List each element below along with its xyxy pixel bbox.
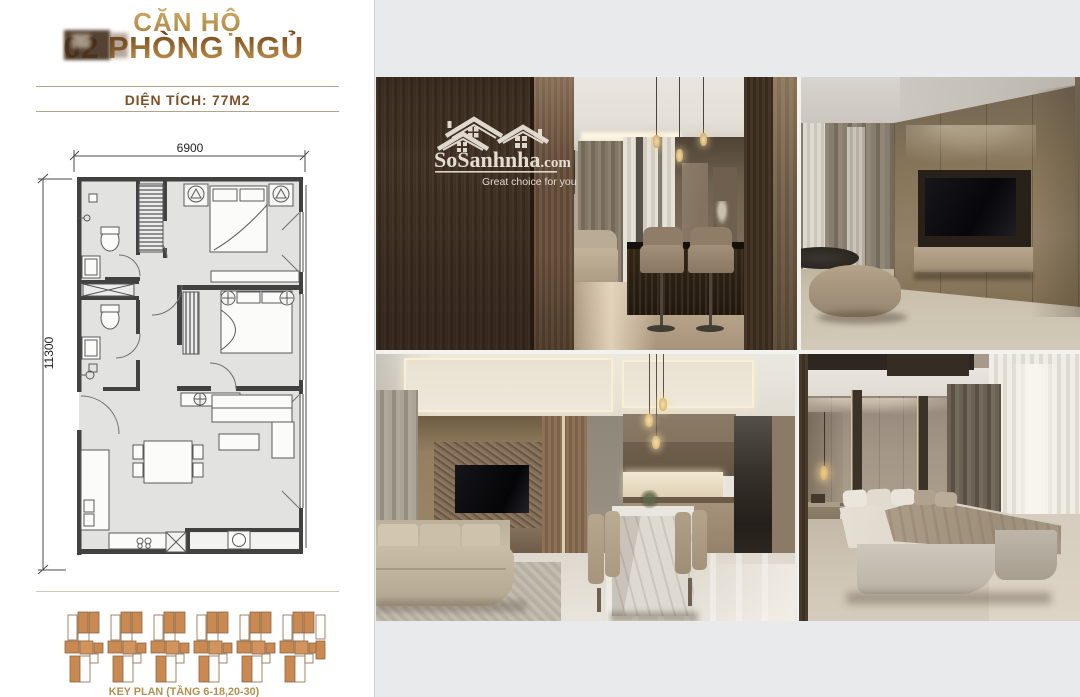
svg-text:6900: 6900 bbox=[177, 141, 204, 155]
svg-text:11300: 11300 bbox=[42, 336, 56, 369]
svg-text:KEY PLAN (TẦNG 6-18,20-30): KEY PLAN (TẦNG 6-18,20-30) bbox=[109, 685, 260, 697]
